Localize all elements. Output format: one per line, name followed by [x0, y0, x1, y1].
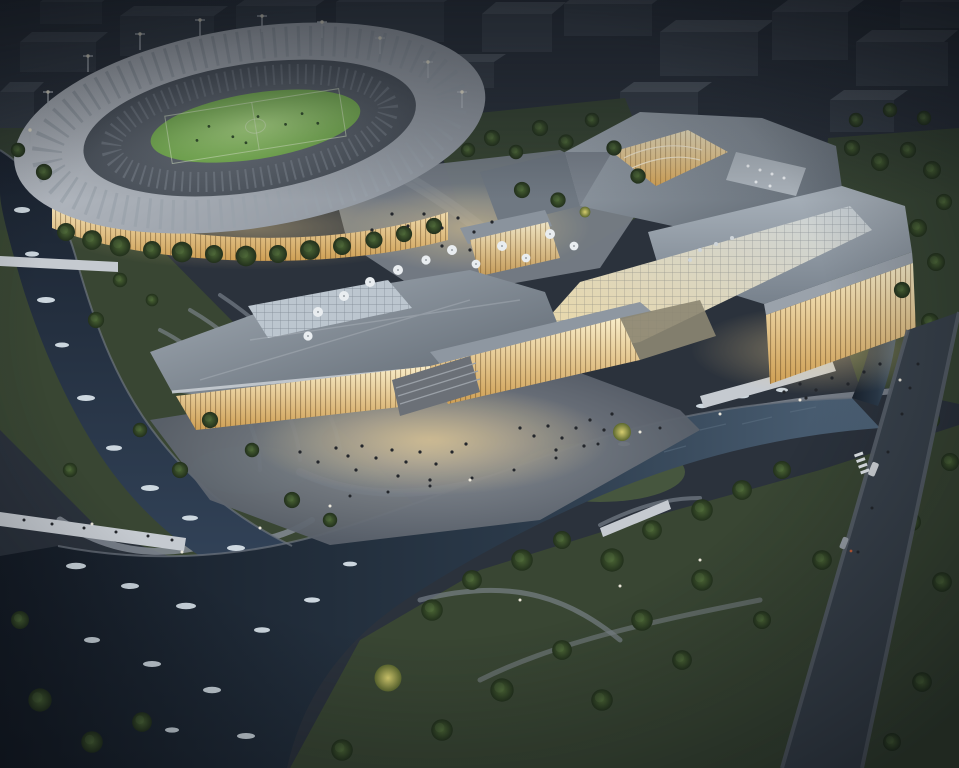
rendering-canvas — [0, 0, 959, 768]
aerial-rendering — [0, 0, 959, 768]
vignette — [0, 0, 959, 768]
